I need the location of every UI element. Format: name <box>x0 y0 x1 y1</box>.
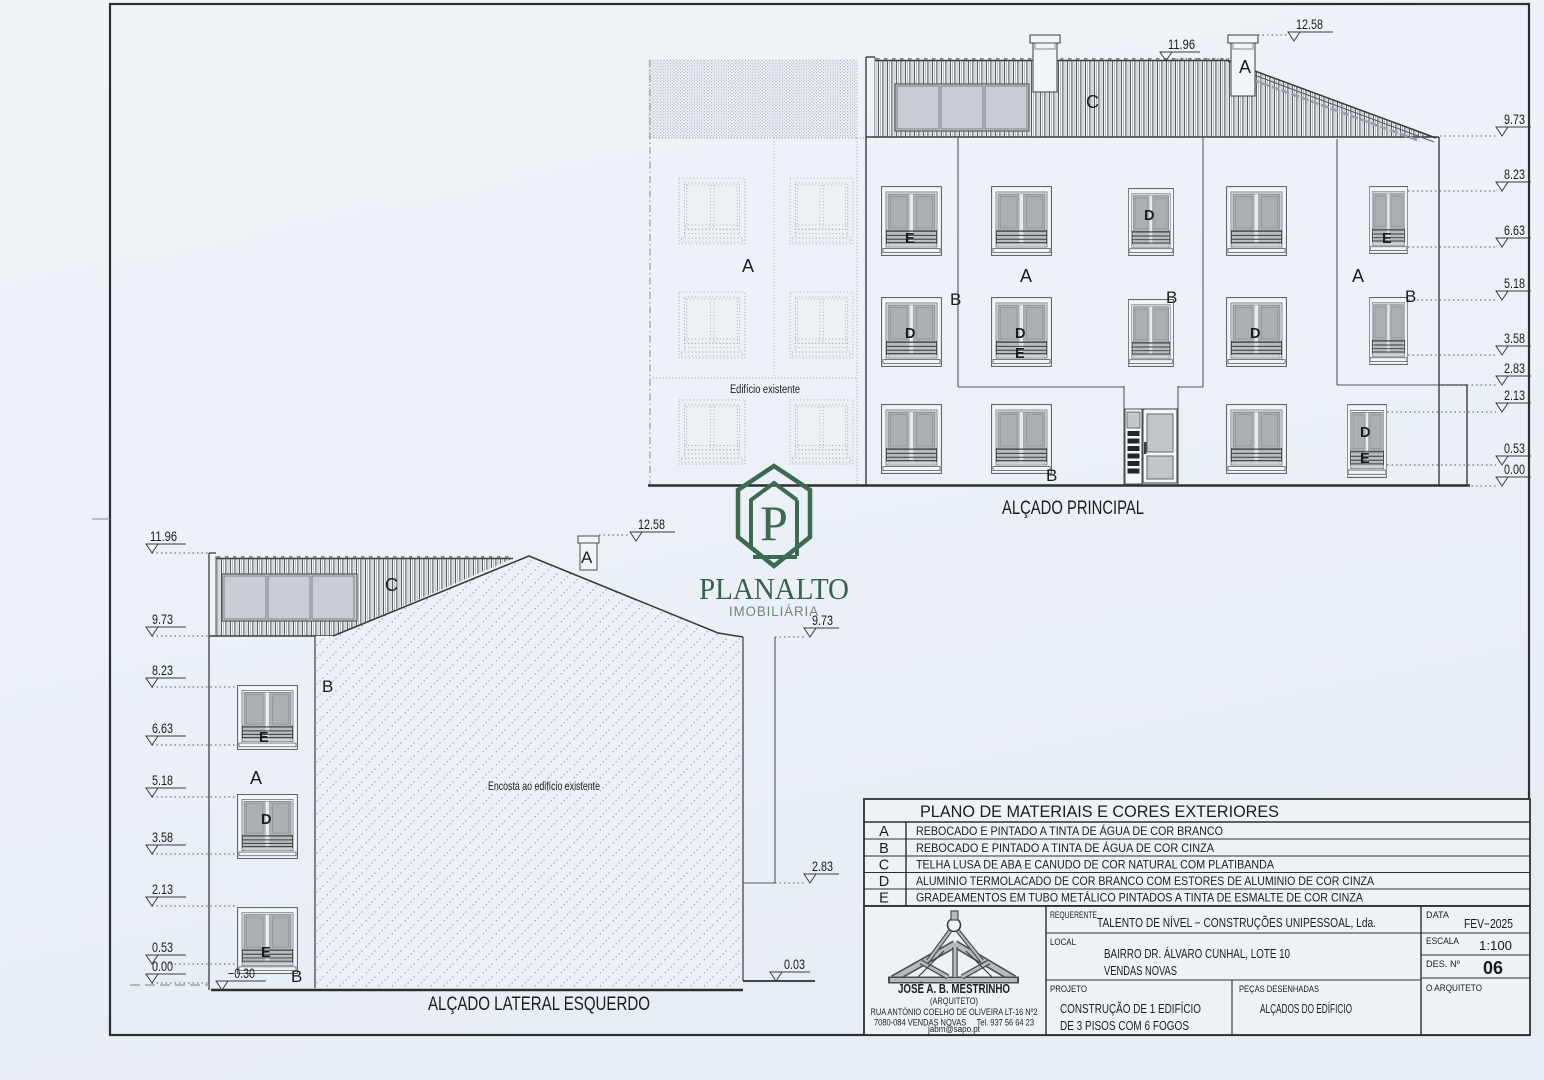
svg-text:B: B <box>322 677 333 696</box>
svg-text:PROJETO: PROJETO <box>1050 984 1087 995</box>
svg-text:A: A <box>879 824 889 840</box>
svg-text:C: C <box>1086 92 1099 112</box>
svg-text:E: E <box>261 945 271 961</box>
svg-text:A: A <box>1239 57 1251 77</box>
svg-text:6.63: 6.63 <box>152 721 173 736</box>
svg-text:5.18: 5.18 <box>152 773 173 788</box>
svg-text:E: E <box>1382 231 1392 247</box>
svg-text:PLANALTO: PLANALTO <box>699 571 849 606</box>
svg-text:A: A <box>581 548 593 567</box>
svg-text:3.58: 3.58 <box>152 830 173 845</box>
svg-text:Edifício existente: Edifício existente <box>730 384 800 396</box>
svg-text:11.96: 11.96 <box>1168 37 1195 52</box>
svg-text:12.58: 12.58 <box>638 517 665 532</box>
svg-text:ESCALA: ESCALA <box>1426 936 1460 947</box>
svg-text:P: P <box>760 495 788 551</box>
svg-text:E: E <box>905 231 915 247</box>
svg-text:0.00: 0.00 <box>152 959 173 974</box>
svg-text:REQUERENTE: REQUERENTE <box>1050 910 1097 921</box>
svg-text:PEÇAS DESENHADAS: PEÇAS DESENHADAS <box>1239 984 1319 995</box>
svg-text:B: B <box>291 967 302 986</box>
svg-text:2.13: 2.13 <box>1504 388 1525 403</box>
svg-text:−0.30: −0.30 <box>228 966 255 981</box>
svg-text:TELHA LUSA DE ABA E CANUDO DE: TELHA LUSA DE ABA E CANUDO DE COR NATURA… <box>916 858 1274 872</box>
svg-text:6.63: 6.63 <box>1504 223 1525 238</box>
svg-text:E: E <box>1015 346 1025 362</box>
svg-text:A: A <box>1352 266 1364 286</box>
svg-text:PLANO DE MATERIAIS E CORES EXT: PLANO DE MATERIAIS E CORES EXTERIORES <box>920 803 1279 821</box>
svg-text:D: D <box>1144 208 1154 224</box>
svg-text:REBOCADO E PINTADO A TINTA DE: REBOCADO E PINTADO A TINTA DE ÁGUA DE CO… <box>916 823 1223 838</box>
svg-text:CONSTRUÇÃO DE 1 EDIFÍCIO: CONSTRUÇÃO DE 1 EDIFÍCIO <box>1060 1001 1201 1016</box>
svg-text:0.03: 0.03 <box>784 957 805 972</box>
svg-text:3.58: 3.58 <box>1504 331 1525 346</box>
svg-text:ALUMINIO TERMOLACADO DE COR BR: ALUMINIO TERMOLACADO DE COR BRANCO COM E… <box>916 874 1374 888</box>
svg-text:B: B <box>1166 288 1177 307</box>
svg-text:8.23: 8.23 <box>1504 167 1525 182</box>
svg-text:TALENTO DE NÍVEL − CONSTRUÇÕES: TALENTO DE NÍVEL − CONSTRUÇÕES UNIPESSOA… <box>1097 915 1376 930</box>
svg-text:B: B <box>1046 466 1057 485</box>
svg-text:jabm@sapo.pt: jabm@sapo.pt <box>927 1024 980 1034</box>
svg-text:E: E <box>259 730 269 746</box>
svg-text:DE 3 PISOS COM 6 FOGOS: DE 3 PISOS COM 6 FOGOS <box>1060 1019 1189 1033</box>
svg-text:8.23: 8.23 <box>152 663 173 678</box>
svg-text:0.53: 0.53 <box>152 940 173 955</box>
svg-text:DATA: DATA <box>1426 910 1450 921</box>
svg-text:9.73: 9.73 <box>152 612 173 627</box>
svg-text:B: B <box>950 290 961 309</box>
svg-text:D: D <box>1015 326 1025 342</box>
svg-text:9.73: 9.73 <box>1504 112 1525 127</box>
svg-text:ALÇADO PRINCIPAL: ALÇADO PRINCIPAL <box>1002 497 1144 519</box>
svg-text:Encosta ao edifício existente: Encosta ao edifício existente <box>488 779 600 793</box>
svg-text:06: 06 <box>1483 958 1503 978</box>
svg-text:REBOCADO E PINTADO A TINTA DE: REBOCADO E PINTADO A TINTA DE ÁGUA DE CO… <box>916 840 1214 855</box>
svg-text:A: A <box>742 256 754 276</box>
svg-text:D: D <box>261 812 271 828</box>
svg-text:ALÇADO LATERAL ESQUERDO: ALÇADO LATERAL ESQUERDO <box>428 993 650 1015</box>
svg-text:D: D <box>1360 425 1370 441</box>
svg-text:C: C <box>385 575 398 595</box>
svg-text:FEV−2025: FEV−2025 <box>1464 917 1513 931</box>
svg-text:D: D <box>905 326 915 342</box>
svg-text:JOSÉ A. B. MESTRINHO: JOSÉ A. B. MESTRINHO <box>898 981 1010 996</box>
svg-text:B: B <box>879 841 889 857</box>
svg-text:A: A <box>250 768 262 788</box>
svg-text:E: E <box>879 891 889 907</box>
svg-text:11.96: 11.96 <box>150 529 177 544</box>
svg-text:2.83: 2.83 <box>812 859 833 874</box>
svg-text:O ARQUITETO: O ARQUITETO <box>1426 983 1482 994</box>
svg-text:2.83: 2.83 <box>1504 361 1525 376</box>
svg-text:ALÇADOS DO EDÍFICIO: ALÇADOS DO EDÍFICIO <box>1260 1001 1352 1016</box>
svg-text:B: B <box>1405 287 1416 306</box>
svg-text:1:100: 1:100 <box>1479 939 1512 953</box>
svg-text:D: D <box>879 874 889 890</box>
svg-text:2.13: 2.13 <box>152 882 173 897</box>
svg-text:0.00: 0.00 <box>1504 462 1525 477</box>
svg-text:DES. Nº: DES. Nº <box>1426 959 1460 970</box>
svg-text:IMOBILIÁRIA: IMOBILIÁRIA <box>729 604 819 619</box>
svg-text:VENDAS NOVAS: VENDAS NOVAS <box>1104 964 1177 978</box>
svg-text:A: A <box>1020 266 1032 286</box>
svg-text:0.53: 0.53 <box>1504 441 1525 456</box>
svg-text:C: C <box>879 858 889 874</box>
svg-text:BAIRRO DR. ÁLVARO CUNHAL, LOTE: BAIRRO DR. ÁLVARO CUNHAL, LOTE 10 <box>1104 946 1290 961</box>
svg-text:12.58: 12.58 <box>1296 17 1323 32</box>
svg-text:RUA ANTÓNIO COELHO DE OLIVEIRA: RUA ANTÓNIO COELHO DE OLIVEIRA LT-16 Nº2 <box>871 1007 1038 1017</box>
svg-text:LOCAL: LOCAL <box>1050 937 1076 948</box>
svg-text:D: D <box>1250 326 1260 342</box>
svg-text:(ARQUITETO): (ARQUITETO) <box>930 996 978 1007</box>
svg-text:E: E <box>1360 451 1370 467</box>
svg-text:GRADEAMENTOS EM TUBO METÁLICO: GRADEAMENTOS EM TUBO METÁLICO PINTADOS A… <box>916 890 1363 905</box>
svg-text:5.18: 5.18 <box>1504 276 1525 291</box>
